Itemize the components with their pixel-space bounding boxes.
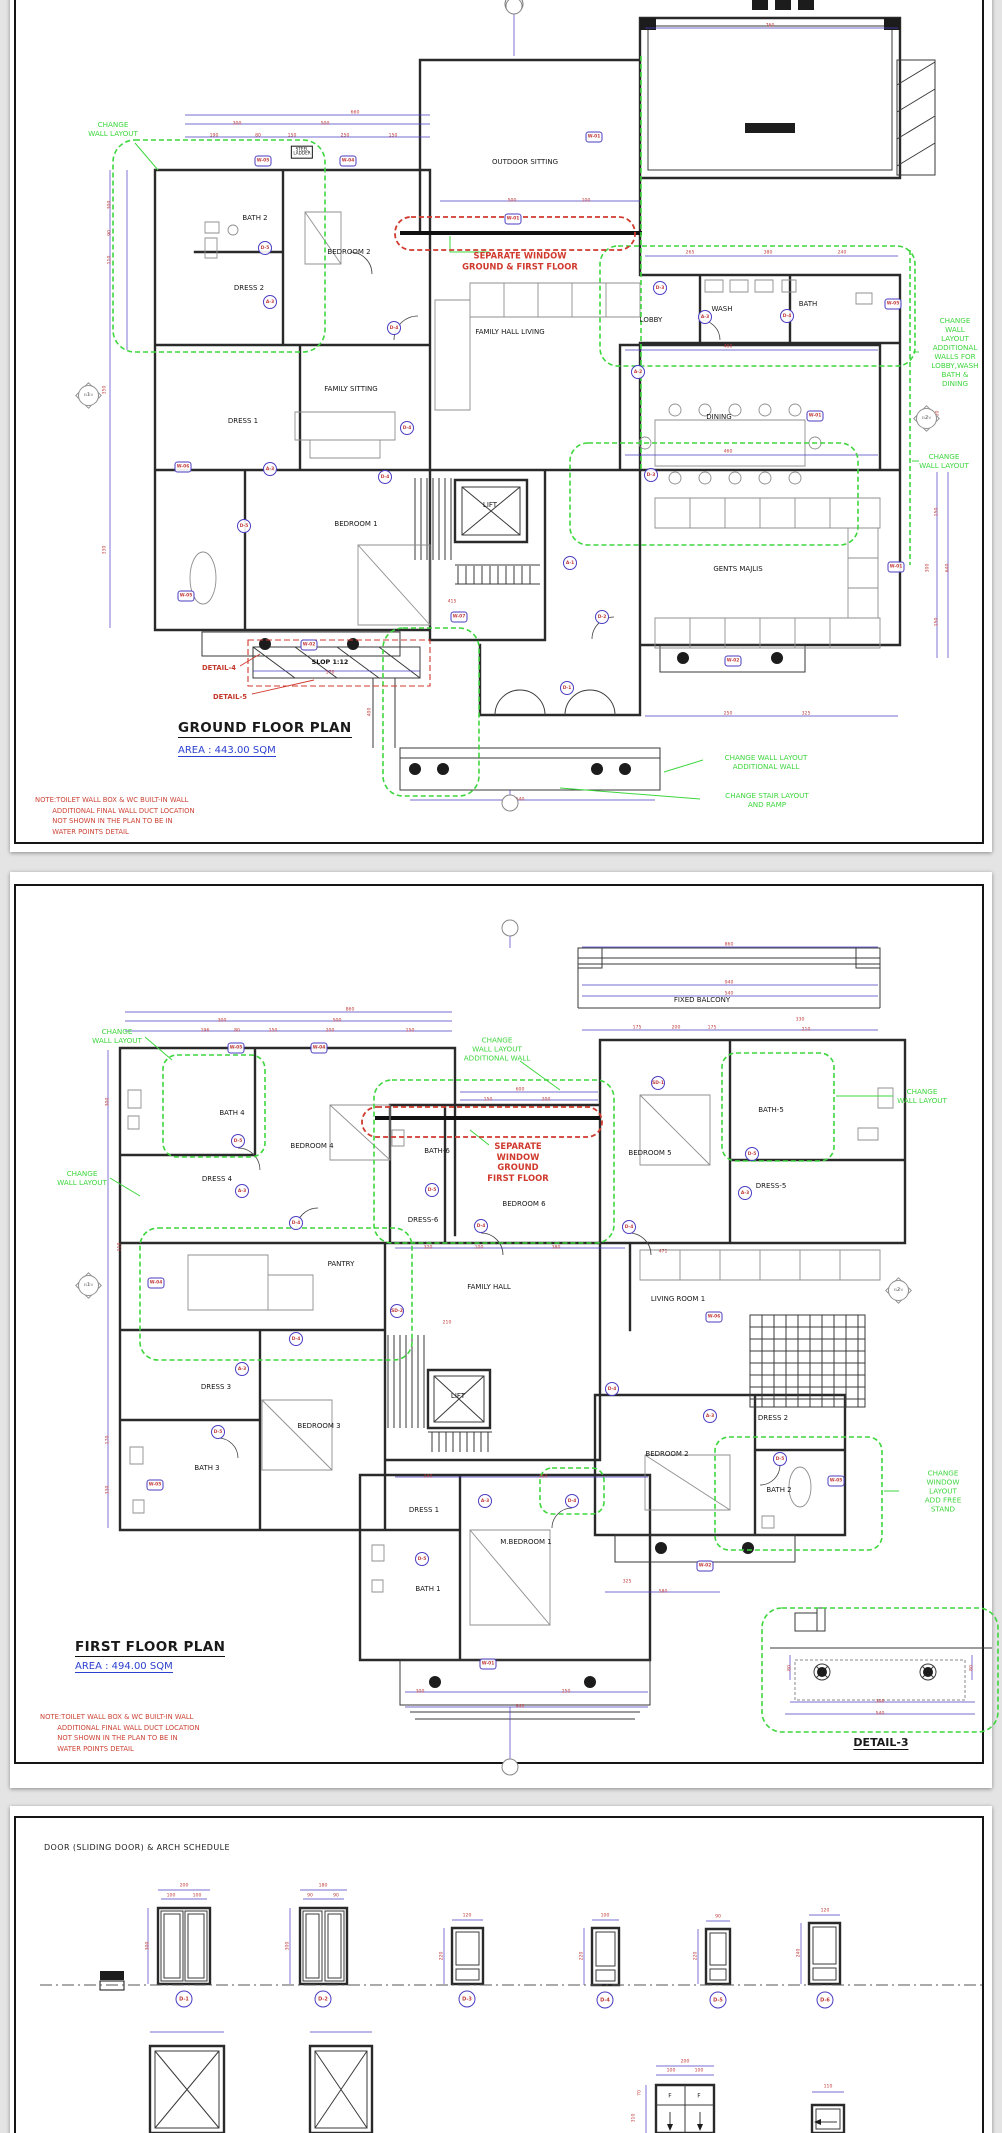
- first-floor-area: AREA : 494.00 SQM: [75, 1661, 173, 1673]
- dim-label: 220: [580, 1952, 585, 1961]
- dim-label: 150: [935, 618, 940, 627]
- window-marker: W-05: [228, 1043, 245, 1054]
- room-label: DRESS 2: [234, 284, 264, 292]
- dim-label: 240: [797, 1949, 802, 1958]
- door-marker: A-3: [235, 1184, 249, 1198]
- room-label: LOBBY: [640, 316, 663, 324]
- door-marker: A-3: [235, 1362, 249, 1376]
- room-label: LIVING ROOM 1: [651, 1295, 705, 1303]
- dim-label: 300: [233, 122, 242, 127]
- dim-label: 940: [725, 981, 734, 986]
- door-marker: A-3: [698, 310, 712, 324]
- reference-node: [502, 920, 519, 937]
- dim-label: 175: [633, 1026, 642, 1031]
- first-floor-title: FIRST FLOOR PLAN: [75, 1639, 225, 1657]
- room-label: DRESS 4: [202, 1175, 232, 1183]
- door-marker: D-1: [560, 681, 574, 695]
- dim-label: 640: [946, 564, 951, 573]
- ground-floor-title: GROUND FLOOR PLAN: [178, 720, 352, 738]
- dim-label: 300: [286, 1942, 291, 1951]
- room-label: BATH 2: [766, 1486, 791, 1494]
- dim-label: 80: [234, 1029, 240, 1034]
- dim-label: 330: [796, 1018, 805, 1023]
- alert-annotation: SEPARATE WINDOW GROUND FIRST FLOOR: [487, 1141, 548, 1183]
- dim-label: 220: [694, 1952, 699, 1961]
- dim-label: 150: [484, 1098, 493, 1103]
- door-marker: D-5: [425, 1183, 439, 1197]
- window-marker: W-06: [706, 1312, 723, 1323]
- alert-annotation: DETAIL-4: [202, 664, 236, 672]
- door-marker: A-2: [631, 365, 645, 379]
- door-marker: A-3: [703, 1409, 717, 1423]
- door-schedule-tag: D-3: [459, 1991, 476, 2008]
- door-marker: D-5: [211, 1425, 225, 1439]
- room-label: PANTRY: [328, 1260, 355, 1268]
- room-label: LIFT: [451, 1392, 465, 1400]
- dim-label: 471: [659, 1250, 668, 1255]
- window-marker: W-05: [147, 1480, 164, 1491]
- room-label: BATH 1: [415, 1585, 440, 1593]
- window-marker: W-01: [586, 132, 603, 143]
- dim-label: 360: [539, 1475, 548, 1480]
- door-marker: D-5: [745, 1147, 759, 1161]
- dim-label: 150: [935, 508, 940, 517]
- window-marker: W-02: [301, 640, 318, 651]
- room-label: DRESS 2: [758, 1414, 788, 1422]
- dim-label: 320: [424, 1246, 433, 1251]
- revision-annotation: CHANGE WALL LAYOUT: [919, 452, 969, 470]
- dim-label: 90: [715, 1915, 721, 1920]
- dim-label: 265: [686, 251, 695, 256]
- dim-label: 325: [623, 1580, 632, 1585]
- dim-label: 180: [319, 1884, 328, 1889]
- door-schedule-tag: D-4: [597, 1992, 614, 2009]
- dim-label: 300: [108, 201, 113, 210]
- dim-label: 210: [802, 1028, 811, 1033]
- door-marker: A-3: [263, 295, 277, 309]
- window-marker: W-04: [311, 1043, 328, 1054]
- door-marker: D-2: [595, 610, 609, 624]
- dim-label: 540: [876, 1712, 885, 1717]
- room-label: DRESS 1: [409, 1506, 439, 1514]
- alert-annotation: STEEL LADDER: [291, 146, 313, 159]
- dim-label: 240: [424, 1475, 433, 1480]
- door-marker: D-4: [605, 1382, 619, 1396]
- revision-annotation: CHANGE WALL LAYOUT ADDITIONAL WALLS FOR …: [931, 316, 978, 388]
- elevation-marker: 1ELEV: [75, 382, 101, 408]
- room-label: DRESS 1: [228, 417, 258, 425]
- dim-label: 310: [632, 2114, 637, 2123]
- window-marker: W-01: [480, 1659, 497, 1670]
- window-marker: W-02: [697, 1561, 714, 1572]
- dim-label: 580: [659, 1590, 668, 1595]
- dim-label: 120: [821, 1909, 830, 1914]
- dim-label: 300: [106, 1098, 111, 1107]
- window-marker: W-04: [148, 1278, 165, 1289]
- dim-label: 90: [307, 1894, 313, 1899]
- dim-label: 660: [351, 111, 360, 116]
- door-marker: D-4: [780, 309, 794, 323]
- dim-label: 100: [601, 1914, 610, 1919]
- window-marker: W-01: [807, 411, 824, 422]
- revision-annotation: CHANGE WALL LAYOUT ADDITIONAL WALL: [464, 1036, 531, 1063]
- room-label: DRESS 3: [201, 1383, 231, 1391]
- dim-label: 210: [443, 1321, 452, 1326]
- dim-label: 250: [724, 712, 733, 717]
- dim-label: 110: [118, 1243, 123, 1252]
- dim-label: 300: [876, 1700, 885, 1705]
- room-label: BEDROOM 5: [628, 1149, 671, 1157]
- dim-label: 250: [562, 1690, 571, 1695]
- door-marker: D-5: [415, 1552, 429, 1566]
- reference-node: [502, 1759, 519, 1776]
- dim-label: 200: [326, 1029, 335, 1034]
- dim-label: 150: [406, 1029, 415, 1034]
- dim-label: 240: [838, 251, 847, 256]
- room-label: BATH 3: [194, 1464, 219, 1472]
- panel-letter: F: [668, 2093, 671, 2100]
- door-marker: D-3: [653, 281, 667, 295]
- dim-label: 90: [108, 230, 113, 236]
- dim-label: 860: [346, 1008, 355, 1013]
- door-marker: A-3: [263, 462, 277, 476]
- room-label: BEDROOM 1: [334, 520, 377, 528]
- dim-label: 600: [516, 1088, 525, 1093]
- revision-annotation: CHANGE STAIR LAYOUT AND RAMP: [725, 791, 809, 809]
- door-marker: D-4: [400, 421, 414, 435]
- room-label: DRESS-5: [756, 1182, 787, 1190]
- room-label: BEDROOM 4: [290, 1142, 333, 1150]
- dim-label: 400: [368, 708, 373, 717]
- room-label: FIXED BALCONY: [674, 996, 730, 1004]
- dim-label: 100: [667, 2069, 676, 2074]
- door-marker: D-4: [622, 1220, 636, 1234]
- window-marker: W-01: [888, 562, 905, 573]
- dim-label: 460: [724, 345, 733, 350]
- dim-label: 250: [341, 134, 350, 139]
- dim-label: 150: [288, 134, 297, 139]
- door-schedule-tag: D-2: [315, 1991, 332, 2008]
- room-label: BEDROOM 2: [645, 1450, 688, 1458]
- dim-label: 150: [389, 134, 398, 139]
- dim-label: 196: [201, 1029, 210, 1034]
- room-label: LIFT: [483, 501, 497, 509]
- alert-annotation: DETAIL-5: [213, 693, 247, 701]
- room-label: WASH: [711, 305, 732, 313]
- dim-label: 380: [764, 251, 773, 256]
- room-label: BEDROOM 3: [297, 1422, 340, 1430]
- label-overlay: GROUND FLOOR PLAN AREA : 443.00 SQM NOTE…: [0, 0, 1002, 2133]
- dim-label: 100: [193, 1894, 202, 1899]
- elevation-marker: 2ELEV: [885, 1277, 911, 1303]
- dim-label: 415: [448, 600, 457, 605]
- dim-label: 300: [416, 1690, 425, 1695]
- dim-label: 200: [542, 1098, 551, 1103]
- door-marker: SD-2: [390, 1304, 404, 1318]
- dim-label: 200: [672, 1026, 681, 1031]
- window-marker: W-06: [175, 462, 192, 473]
- drawing-viewer-canvas: GROUND FLOOR PLAN AREA : 443.00 SQM NOTE…: [0, 0, 1002, 2133]
- dim-label: 460: [724, 450, 733, 455]
- dim-label: 500: [321, 122, 330, 127]
- dim-label: 860: [725, 943, 734, 948]
- room-label: BATH 2: [242, 214, 267, 222]
- dim-label: 80: [255, 134, 261, 139]
- room-label: OUTDOOR SITTING: [492, 158, 558, 166]
- dim-label: 760: [766, 24, 775, 29]
- alert-annotation: SEPARATE WINDOW GROUND & FIRST FLOOR: [462, 251, 578, 272]
- dim-label: 80: [970, 1665, 975, 1671]
- door-marker: A-3: [738, 1186, 752, 1200]
- dim-label: 175: [708, 1026, 717, 1031]
- window-marker: W-02: [725, 656, 742, 667]
- dim-label: 200: [681, 2060, 690, 2065]
- door-schedule-tag: D-6: [817, 1992, 834, 2009]
- first-floor-note: NOTE:TOILET WALL BOX & WC BUILT-IN WALL …: [40, 1712, 200, 1754]
- window-marker: W-05: [828, 1476, 845, 1487]
- revision-annotation: CHANGE WALL LAYOUT: [92, 1027, 142, 1045]
- dim-label: 350: [103, 386, 108, 395]
- ground-floor-area: AREA : 443.00 SQM: [178, 745, 276, 757]
- ground-floor-note: NOTE:TOILET WALL BOX & WC BUILT-IN WALL …: [35, 795, 195, 837]
- dim-label: 100: [167, 1894, 176, 1899]
- window-marker: W-05: [885, 299, 902, 310]
- room-label: BATH 4: [219, 1109, 244, 1117]
- dim-label: 330: [103, 546, 108, 555]
- door-marker: D-4: [474, 1219, 488, 1233]
- dim-label: 220: [440, 1952, 445, 1961]
- room-label: FAMILY HALL: [467, 1283, 511, 1291]
- door-marker: D-5: [237, 519, 251, 533]
- dim-label: 500: [333, 1019, 342, 1024]
- dim-label: 100: [475, 1246, 484, 1251]
- window-marker: W-05: [255, 156, 272, 167]
- dim-label: 330: [106, 1486, 111, 1495]
- dim-label: 300: [218, 1019, 227, 1024]
- dim-label: 80: [788, 1665, 793, 1671]
- elevation-marker: 1ELEV: [75, 1272, 101, 1298]
- dim-label: 325: [802, 712, 811, 717]
- room-label: M.BEDROOM 1: [500, 1538, 551, 1546]
- dim-label: 940: [516, 1705, 525, 1710]
- room-label: GENTS MAJLIS: [713, 565, 762, 573]
- reference-node: [506, 0, 523, 15]
- detail-3-label: DETAIL-3: [853, 1736, 908, 1750]
- room-label: DRESS-6: [408, 1216, 439, 1224]
- door-marker: D-3: [644, 468, 658, 482]
- door-marker: A-1: [563, 556, 577, 570]
- dim-label: 170: [106, 1436, 111, 1445]
- revision-annotation: CHANGE WALL LAYOUT: [57, 1169, 107, 1187]
- dim-label: 380: [552, 1246, 561, 1251]
- dim-label: 150: [269, 1029, 278, 1034]
- dim-label: 90: [333, 1894, 339, 1899]
- window-marker: W-07: [451, 612, 468, 623]
- dim-label: 500: [508, 199, 517, 204]
- reference-node: [502, 795, 519, 812]
- room-label: FAMILY SITTING: [324, 385, 377, 393]
- dim-label: 70: [638, 2090, 643, 2096]
- door-marker: D-4: [289, 1216, 303, 1230]
- dim-label: 120: [463, 1914, 472, 1919]
- dim-label: 110: [824, 2085, 833, 2090]
- dim-label: 110: [108, 256, 113, 265]
- door-marker: D-5: [258, 241, 272, 255]
- dim-label: 540: [725, 992, 734, 997]
- dim-label: 190: [210, 134, 219, 139]
- door-marker: D-4: [289, 1332, 303, 1346]
- dim-label: 300: [146, 1942, 151, 1951]
- room-label: BATH-6: [424, 1147, 450, 1155]
- door-marker: D-4: [378, 470, 392, 484]
- door-schedule-tag: D-1: [176, 1991, 193, 2008]
- room-label: BEDROOM 2: [327, 248, 370, 256]
- door-marker: D-4: [565, 1494, 579, 1508]
- room-label: BEDROOM 6: [502, 1200, 545, 1208]
- room-label: FAMILY HALL LIVING: [475, 328, 544, 336]
- window-marker: W-05: [178, 591, 195, 602]
- dim-label: 300: [926, 564, 931, 573]
- dim-label: 200: [180, 1884, 189, 1889]
- door-marker: D-4: [387, 321, 401, 335]
- door-schedule-title: DOOR (SLIDING DOOR) & ARCH SCHEDULE: [44, 1843, 230, 1852]
- revision-annotation: CHANGE WALL LAYOUT: [88, 120, 138, 138]
- window-marker: W-01: [505, 214, 522, 225]
- revision-annotation: CHANGE WALL LAYOUT: [897, 1087, 947, 1105]
- dim-label: 100: [695, 2069, 704, 2074]
- dim-label: 570: [326, 671, 335, 676]
- door-marker: D-5: [773, 1452, 787, 1466]
- door-schedule-tag: D-5: [710, 1992, 727, 2009]
- door-marker: SD-1: [651, 1076, 665, 1090]
- room-label: BATH: [799, 300, 818, 308]
- window-marker: W-04: [340, 156, 357, 167]
- room-label: DINING: [706, 413, 731, 421]
- revision-annotation: CHANGE WINDOW LAYOUT ADD FREE STAND: [914, 1469, 973, 1514]
- door-marker: A-3: [478, 1494, 492, 1508]
- elevation-marker: 2ELEV: [913, 405, 939, 431]
- revision-annotation: CHANGE WALL LAYOUT ADDITIONAL WALL: [725, 753, 808, 771]
- room-label: BATH-5: [758, 1106, 784, 1114]
- alert-annotation: SLOP 1:12: [312, 658, 349, 666]
- door-marker: D-5: [231, 1134, 245, 1148]
- dim-label: 100: [582, 199, 591, 204]
- panel-letter: F: [697, 2093, 700, 2100]
